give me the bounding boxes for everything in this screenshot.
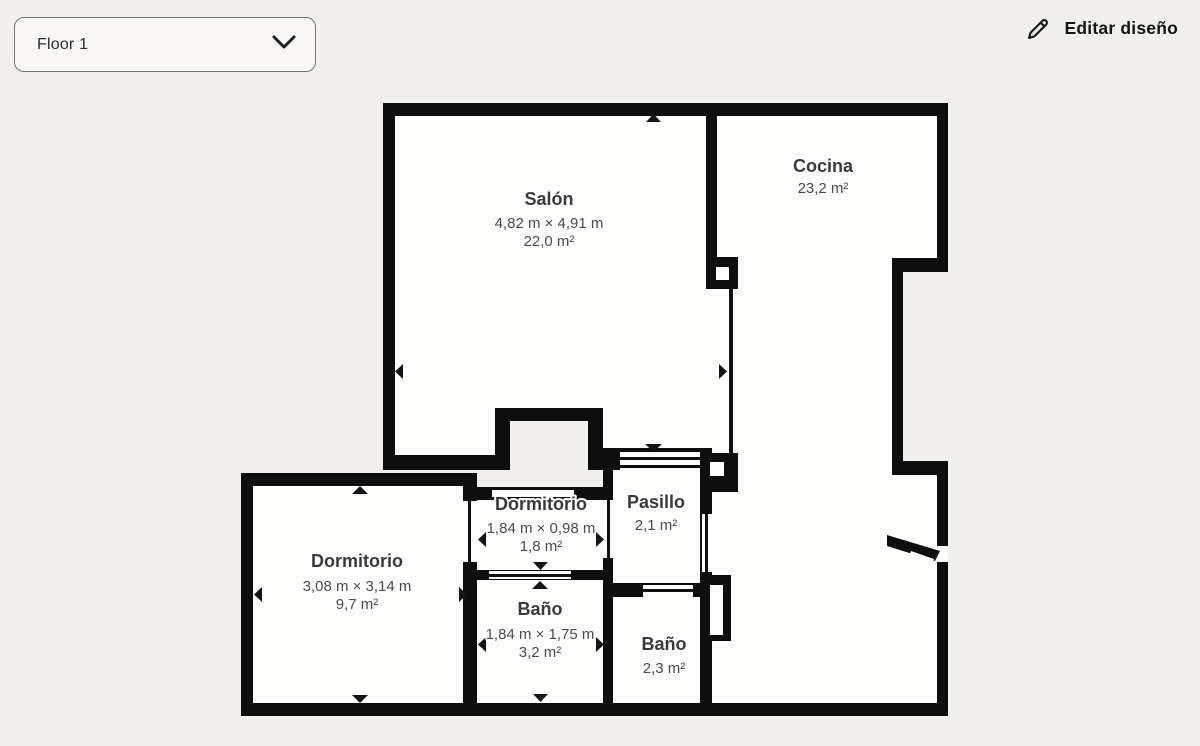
room-area-label-dormitorio-big: 9,7 m² — [336, 596, 379, 613]
door-leaf-dorm-pasillo — [607, 500, 610, 558]
room-label-dormitorio-big: Dormitorio — [311, 551, 403, 571]
wall-right-upper — [937, 103, 948, 272]
wall-notch-jut-top — [892, 258, 948, 272]
wall-joint-marker-bottom — [710, 462, 724, 476]
room-dims-bano-1: 1,84 m × 1,75 m — [486, 626, 595, 643]
wall-salon-left — [383, 103, 395, 470]
wall-right-mid — [937, 461, 948, 548]
wall-joint-marker-top — [716, 267, 729, 280]
door-leaf-pasillo-top — [620, 457, 700, 460]
room-label-bano-1: Baño — [518, 599, 563, 619]
room-area-label-salon: 22,0 m² — [524, 233, 575, 250]
right-side-notch — [903, 272, 948, 461]
door-leaf-dorm-bano — [489, 574, 571, 577]
facade-recess — [510, 421, 588, 473]
door-leaf-dormitorios — [468, 501, 471, 562]
room-label-dormitorio-small: Dormitorio — [495, 494, 587, 514]
door-leaf-pasillo-bano — [643, 589, 693, 592]
wall-bottom — [241, 703, 948, 716]
wall-column-right — [603, 448, 613, 716]
wall-salon-cocina-divider — [706, 103, 717, 260]
room-area-label-bano-1: 3,2 m² — [519, 644, 562, 661]
room-area-label-bano-2: 2,3 m² — [643, 660, 686, 677]
room-label-bano-2: Baño — [642, 634, 687, 654]
wall-salon-bottom — [383, 455, 510, 470]
wall-top — [383, 103, 948, 116]
wall-right-lower — [937, 560, 948, 716]
room-label-pasillo: Pasillo — [627, 492, 685, 512]
room-dims-dormitorio-small: 1,84 m × 0,98 m — [487, 520, 596, 537]
door-leaf-pasillo-cocina — [705, 514, 708, 572]
wall-notch-top — [495, 408, 603, 421]
wall-dormitorio-left — [241, 473, 253, 716]
room-dims-salon: 4,82 m × 4,91 m — [495, 215, 604, 232]
floorplan-canvas: Salón 4,82 m × 4,91 m 22,0 m² Cocina 23,… — [0, 0, 1200, 746]
room-label-salon: Salón — [524, 189, 573, 209]
room-label-cocina: Cocina — [793, 156, 854, 176]
window-salon-cocina — [729, 289, 733, 453]
duct-inner — [710, 585, 723, 635]
room-area-label-cocina: 23,2 m² — [798, 180, 849, 197]
room-dims-dormitorio-big: 3,08 m × 3,14 m — [303, 578, 412, 595]
room-area-label-pasillo: 2,1 m² — [635, 517, 678, 534]
room-area-label-dormitorio-small: 1,8 m² — [520, 538, 563, 555]
wall-dormitorio-top — [241, 473, 477, 486]
wall-notch-vertical — [892, 272, 903, 475]
